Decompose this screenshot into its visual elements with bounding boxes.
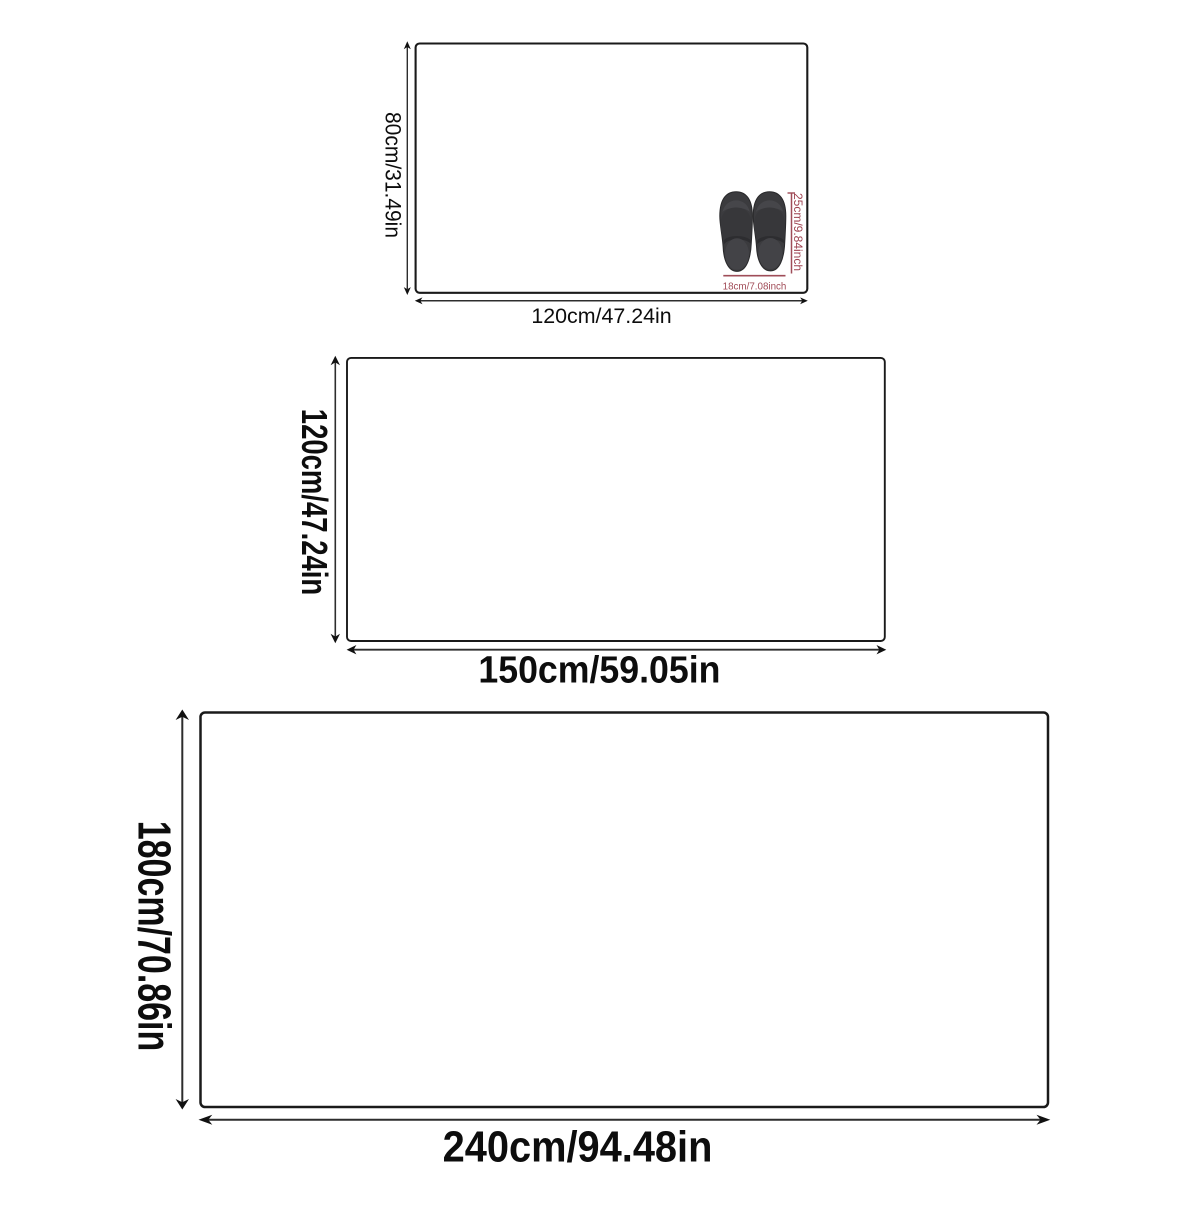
svg-text:18cm/7.08inch: 18cm/7.08inch	[723, 282, 787, 293]
svg-text:180cm/70.86in: 180cm/70.86in	[128, 821, 180, 1052]
svg-text:25cm/9.84inch: 25cm/9.84inch	[791, 193, 805, 271]
svg-text:80cm/31.49in: 80cm/31.49in	[380, 112, 405, 238]
svg-text:150cm/59.05in: 150cm/59.05in	[478, 648, 720, 690]
svg-text:120cm/47.24in: 120cm/47.24in	[531, 304, 671, 328]
svg-text:120cm/47.24in: 120cm/47.24in	[294, 409, 335, 595]
svg-text:240cm/94.48in: 240cm/94.48in	[443, 1122, 713, 1171]
